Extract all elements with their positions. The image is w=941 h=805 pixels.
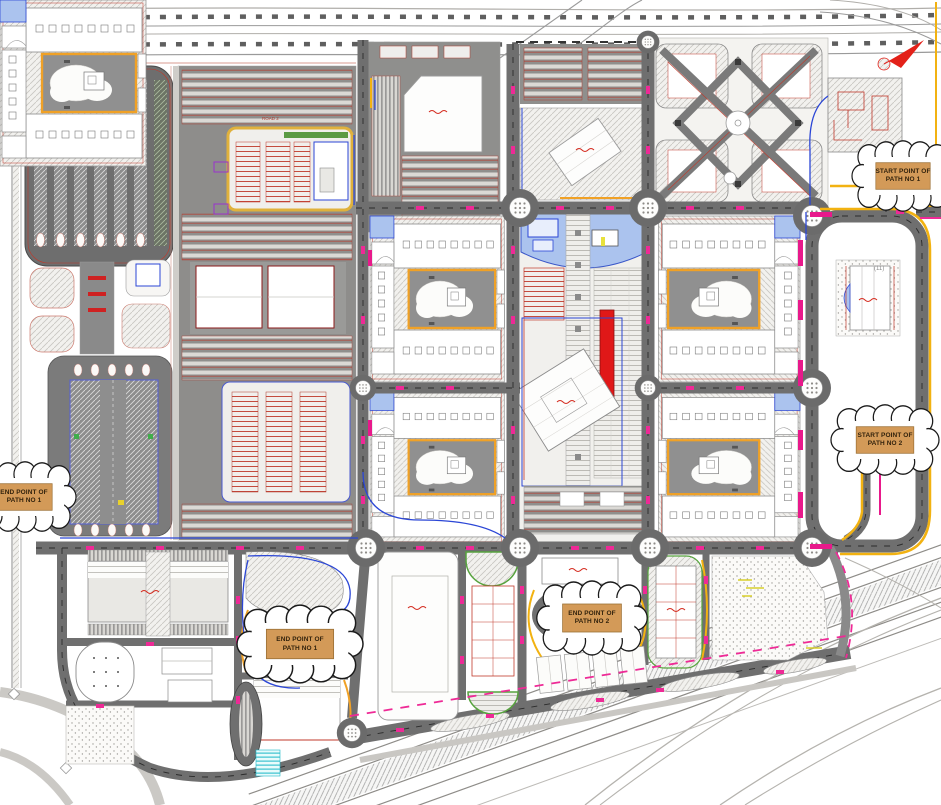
parking-block-south (222, 382, 350, 502)
plaza-block (520, 108, 648, 200)
sports-fields-block (378, 552, 702, 720)
civic-center-block (512, 212, 648, 542)
warehouse-buildings (190, 262, 346, 334)
site-plan-canvas: START POINT OF PATH NO 1 START POINT OF … (0, 0, 941, 805)
terminal-parking-column (171, 66, 356, 540)
site-plot-southeast (712, 556, 828, 660)
mosque-plot-east (836, 260, 900, 336)
parking-rows-north (516, 42, 650, 104)
sports-field (378, 552, 458, 720)
bus-terminal-block (228, 128, 352, 210)
utility-plot-ne (828, 78, 902, 152)
site-plan-drawing (0, 0, 941, 805)
ornate-plaza-block (648, 38, 828, 208)
service-pads-west (30, 260, 170, 354)
